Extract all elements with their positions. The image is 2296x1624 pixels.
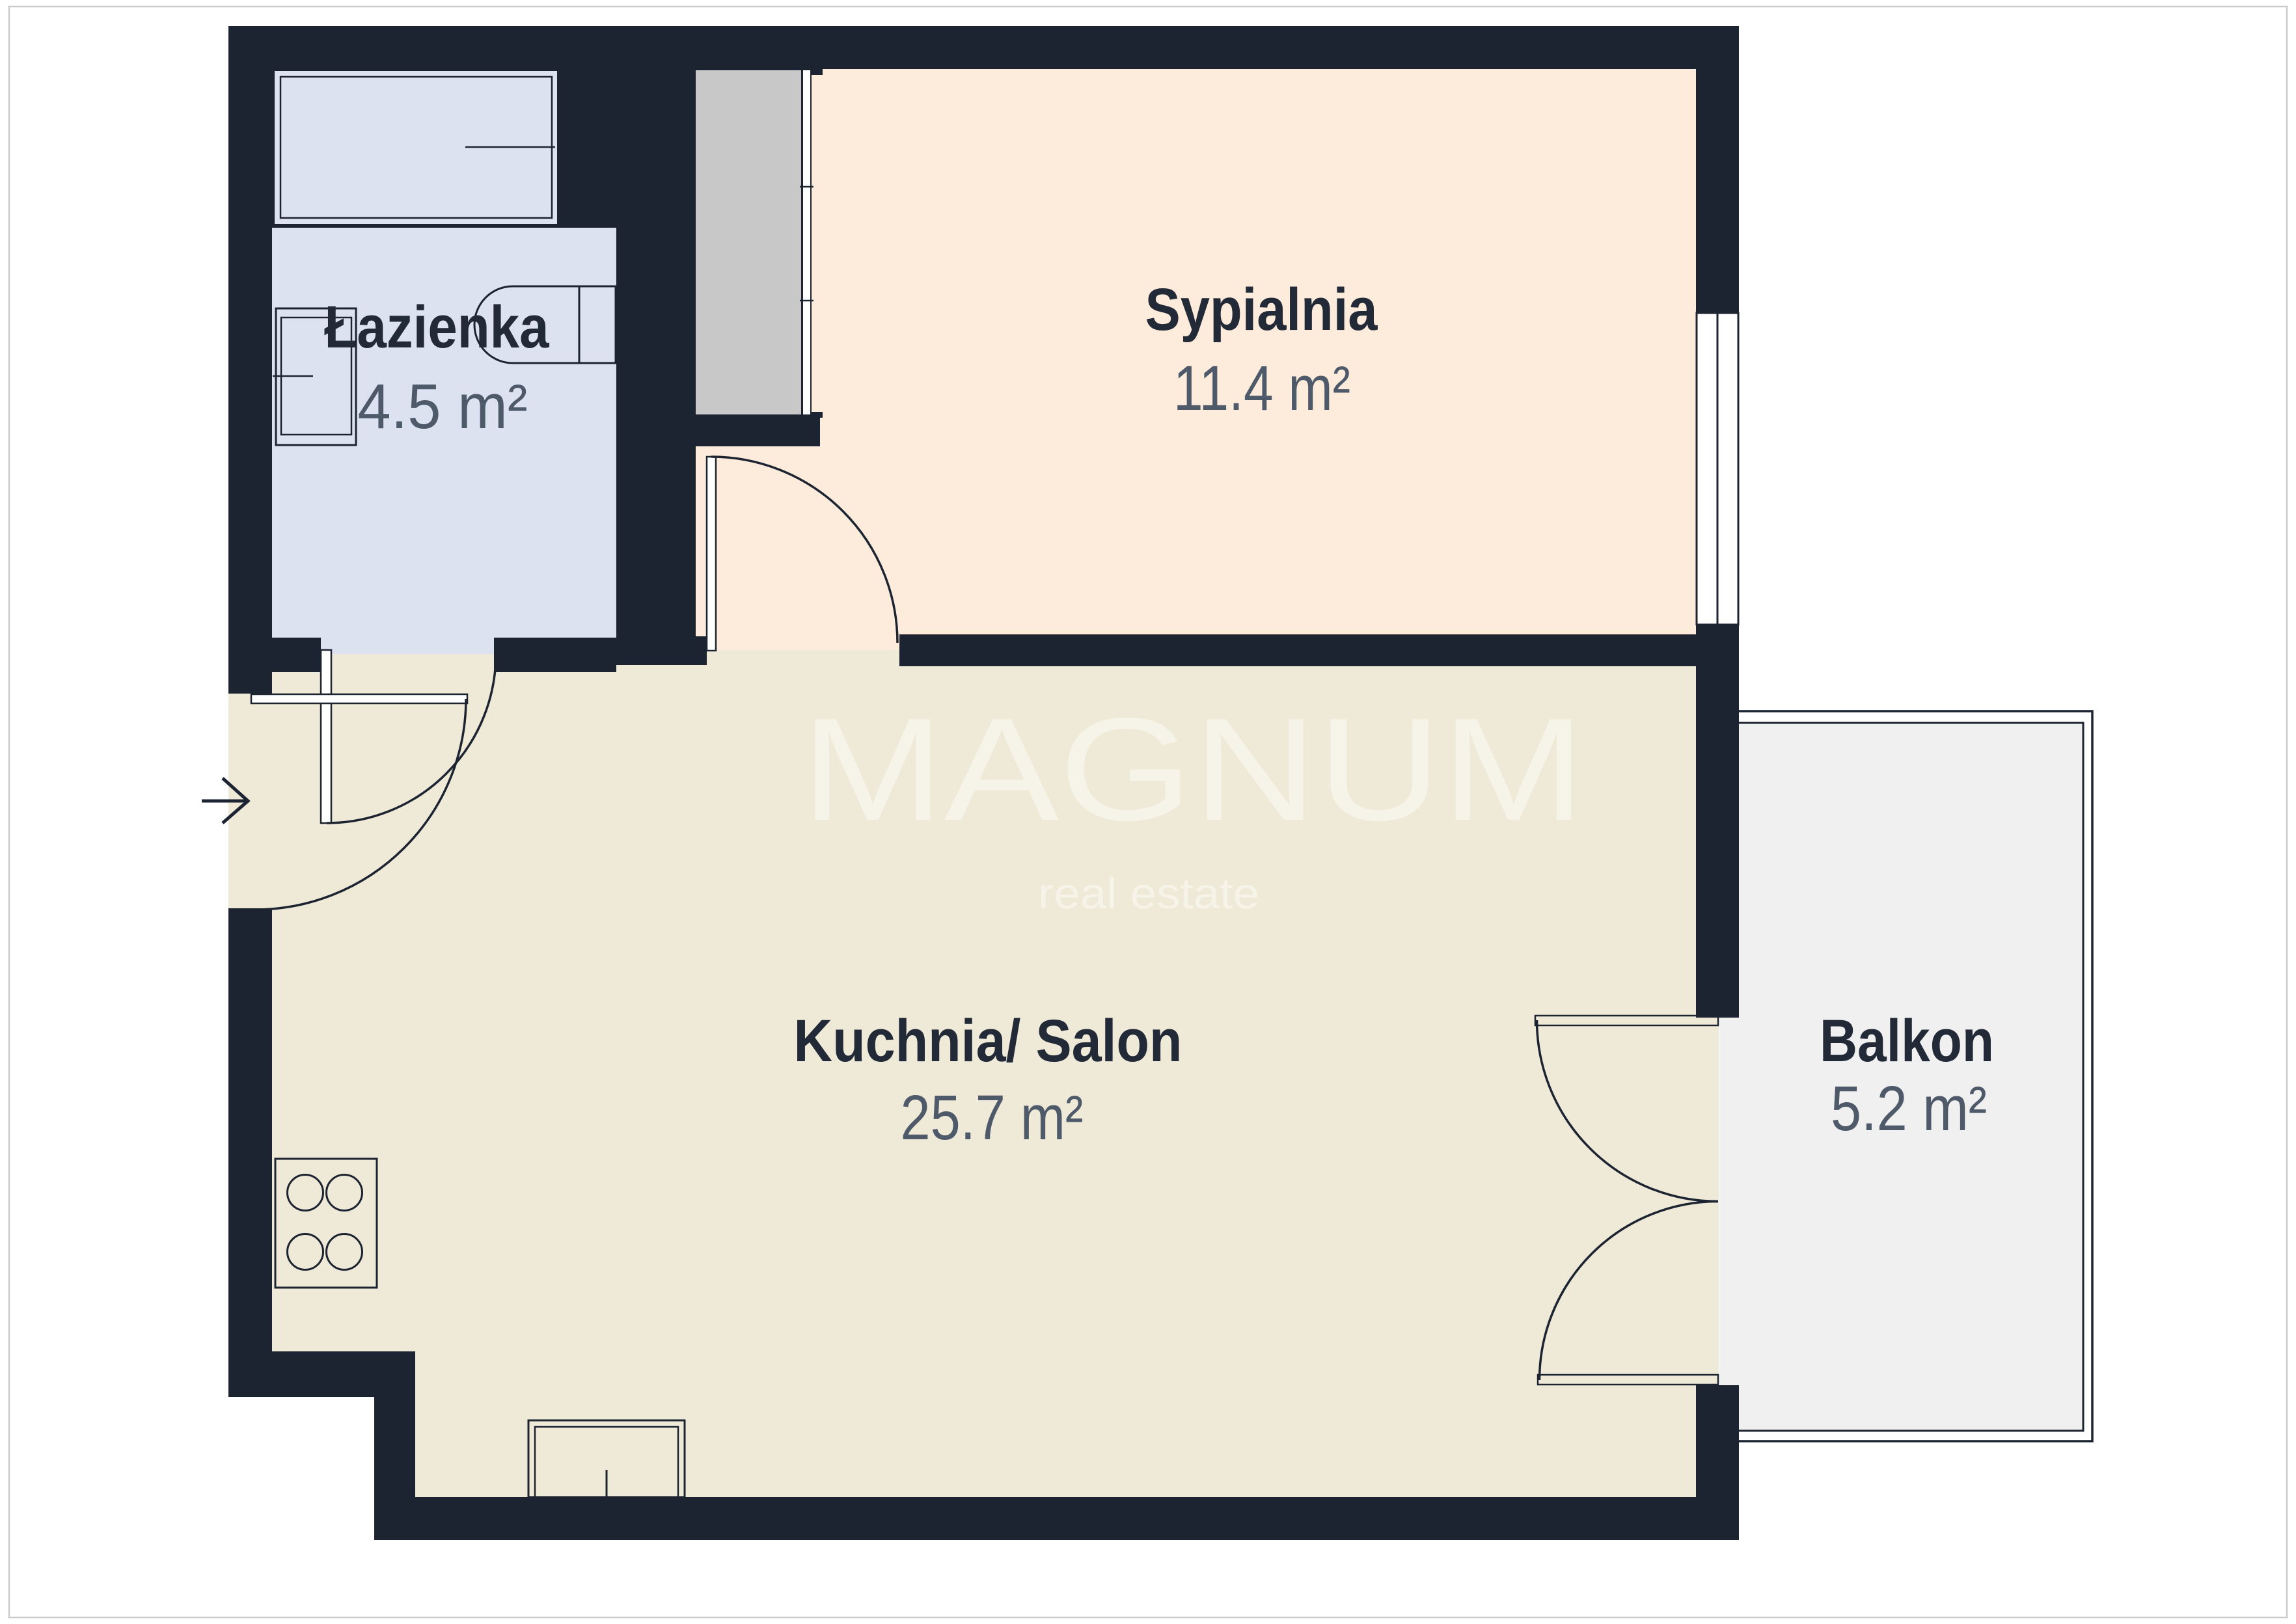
svg-text:MAGNUM: MAGNUM — [801, 687, 1585, 851]
svg-text:4.5 m²: 4.5 m² — [358, 371, 528, 442]
svg-text:Sypialnia: Sypialnia — [1145, 277, 1378, 343]
svg-text:Łazienka: Łazienka — [325, 294, 550, 360]
svg-text:Balkon: Balkon — [1820, 1008, 1994, 1074]
svg-text:11.4 m²: 11.4 m² — [1173, 353, 1350, 424]
svg-text:real estate: real estate — [1038, 869, 1259, 918]
svg-text:Kuchnia/ Salon: Kuchnia/ Salon — [794, 1008, 1182, 1074]
svg-text:25.7 m²: 25.7 m² — [901, 1082, 1084, 1153]
svg-text:5.2 m²: 5.2 m² — [1831, 1073, 1987, 1144]
